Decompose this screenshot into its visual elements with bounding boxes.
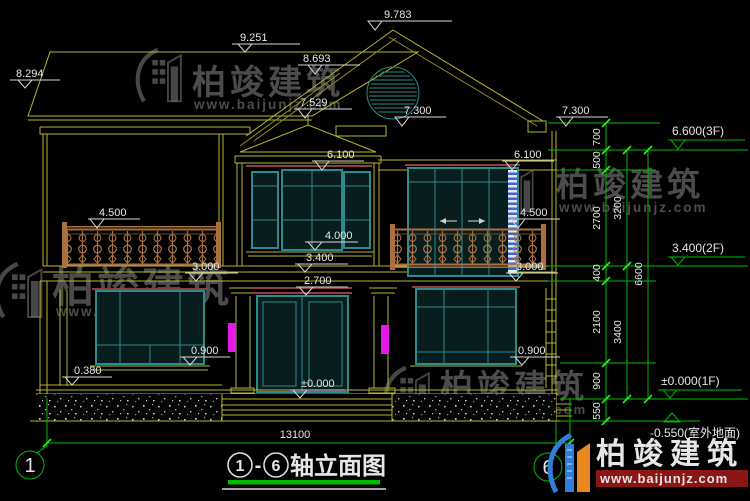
- watermark-url: www.baijunjz.com: [558, 200, 708, 215]
- dim-400: 400: [591, 264, 603, 282]
- entrance-door: [252, 288, 352, 392]
- dim-7300-left: 7.300: [404, 105, 432, 117]
- dim-0380: 0.380: [74, 365, 102, 377]
- dim-3000-right: 3.000: [516, 261, 544, 273]
- dim-700: 700: [591, 128, 603, 146]
- dim-3400: 3.400: [306, 252, 334, 264]
- dim-6100-right: 6.100: [514, 149, 542, 161]
- dim-7529: 7.529: [300, 97, 328, 109]
- dim-3400: 3400: [612, 320, 624, 344]
- dim-4500-left: 4.500: [99, 207, 127, 219]
- dim-0900-left: 0.900: [191, 345, 219, 357]
- dim-6100-center: 6.100: [327, 149, 355, 161]
- drawing-title: 1 - 6 轴立面图: [222, 452, 386, 489]
- window-1f-right: [410, 287, 522, 366]
- dim-total-width: 13100: [280, 429, 311, 441]
- title-text: 轴立面图: [290, 452, 386, 480]
- brand-url-text: www.baijunjz.com: [599, 471, 728, 486]
- title-axis-end: 6: [272, 458, 281, 475]
- dim-0000: ±0.000: [301, 378, 335, 390]
- wall-light-right: [381, 325, 389, 354]
- title-dash: -: [255, 455, 262, 477]
- dim-0900-right: 0.900: [518, 345, 546, 357]
- dim-8693: 8.693: [303, 53, 331, 65]
- title-underline-green: [228, 480, 380, 485]
- dim-8294: 8.294: [16, 68, 44, 80]
- dim-9783: 9.783: [384, 9, 412, 21]
- title-axis-start: 1: [236, 458, 245, 475]
- brand-logo: 柏竣建筑 www.baijunjz.com: [550, 435, 748, 492]
- axis-left-number: 1: [24, 455, 35, 477]
- axis-bubble-left: 1: [16, 446, 47, 479]
- dim-2700: 2700: [591, 206, 603, 230]
- wall-light-left: [228, 323, 236, 352]
- level-3f: 6.600(3F): [672, 124, 724, 138]
- dim-3200: 3200: [612, 196, 624, 220]
- dim-4000: 4.000: [325, 230, 353, 242]
- elevation-drawing-canvas: 柏竣建筑 www.baijunjz.com 柏竣建筑 www.baijunjz.…: [0, 0, 750, 501]
- dim-3000-left: 3.000: [192, 261, 220, 273]
- level-2f: 3.400(2F): [672, 241, 724, 255]
- dim-7300-right: 7.300: [562, 105, 590, 117]
- dim-500: 500: [591, 151, 603, 169]
- window-1f-left: [90, 289, 210, 370]
- dim-4500-right: 4.500: [520, 207, 548, 219]
- dim-900: 900: [591, 372, 603, 390]
- level-1f: ±0.000(1F): [661, 374, 720, 388]
- dim-2100: 2100: [591, 310, 603, 334]
- elevation-drawing: 柏竣建筑 www.baijunjz.com 柏竣建筑 www.baijunjz.…: [0, 0, 750, 501]
- dim-6600: 6600: [633, 262, 645, 286]
- watermark-brand: 柏竣建筑: [556, 166, 704, 203]
- dim-9251: 9.251: [240, 32, 268, 44]
- brand-logo-text: 柏竣建筑: [596, 437, 744, 471]
- dim-550: 550: [591, 402, 603, 420]
- dim-2700: 2.700: [304, 275, 332, 287]
